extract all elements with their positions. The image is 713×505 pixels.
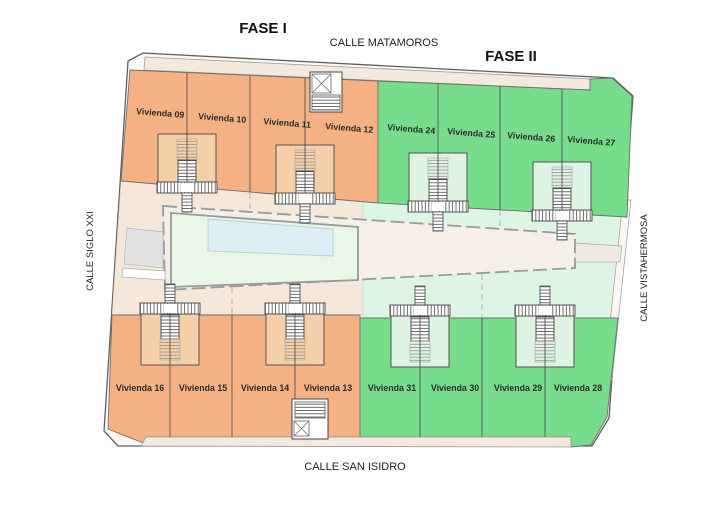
site-plan-page: Vivienda 09 Vivienda 10 Vivienda 11 Vivi… <box>0 0 713 505</box>
side-entrance-path <box>575 243 622 262</box>
stair-core-top <box>310 72 342 112</box>
unit-label-vivienda-14: Vivienda 14 <box>241 383 289 393</box>
fase1-title: FASE I <box>239 20 287 37</box>
fase2-title: FASE II <box>485 48 537 65</box>
street-label-calle-vistahermosa: CALLE VISTAHERMOSA <box>639 214 650 322</box>
gray-zone-left <box>124 228 163 268</box>
stair-core-bottom <box>292 399 328 439</box>
unit-label-vivienda-31: Vivienda 31 <box>368 383 416 393</box>
unit-label-vivienda-30: Vivienda 30 <box>431 383 479 393</box>
street-label-calle-matamoros: CALLE MATAMOROS <box>330 37 438 49</box>
unit-label-vivienda-15: Vivienda 15 <box>179 383 227 393</box>
site-plan-svg: Vivienda 09 Vivienda 10 Vivienda 11 Vivi… <box>0 0 713 505</box>
street-label-calle-san-isidro: CALLE SAN ISIDRO <box>304 461 406 473</box>
unit-label-vivienda-13: Vivienda 13 <box>304 383 352 393</box>
street-label-calle-siglo-xxi: CALLE SIGLO XXI <box>85 211 96 291</box>
unit-label-vivienda-28: Vivienda 28 <box>554 383 602 393</box>
unit-label-vivienda-29: Vivienda 29 <box>494 383 542 393</box>
sidewalk-bottom <box>141 437 571 447</box>
unit-label-vivienda-16: Vivienda 16 <box>116 383 164 393</box>
